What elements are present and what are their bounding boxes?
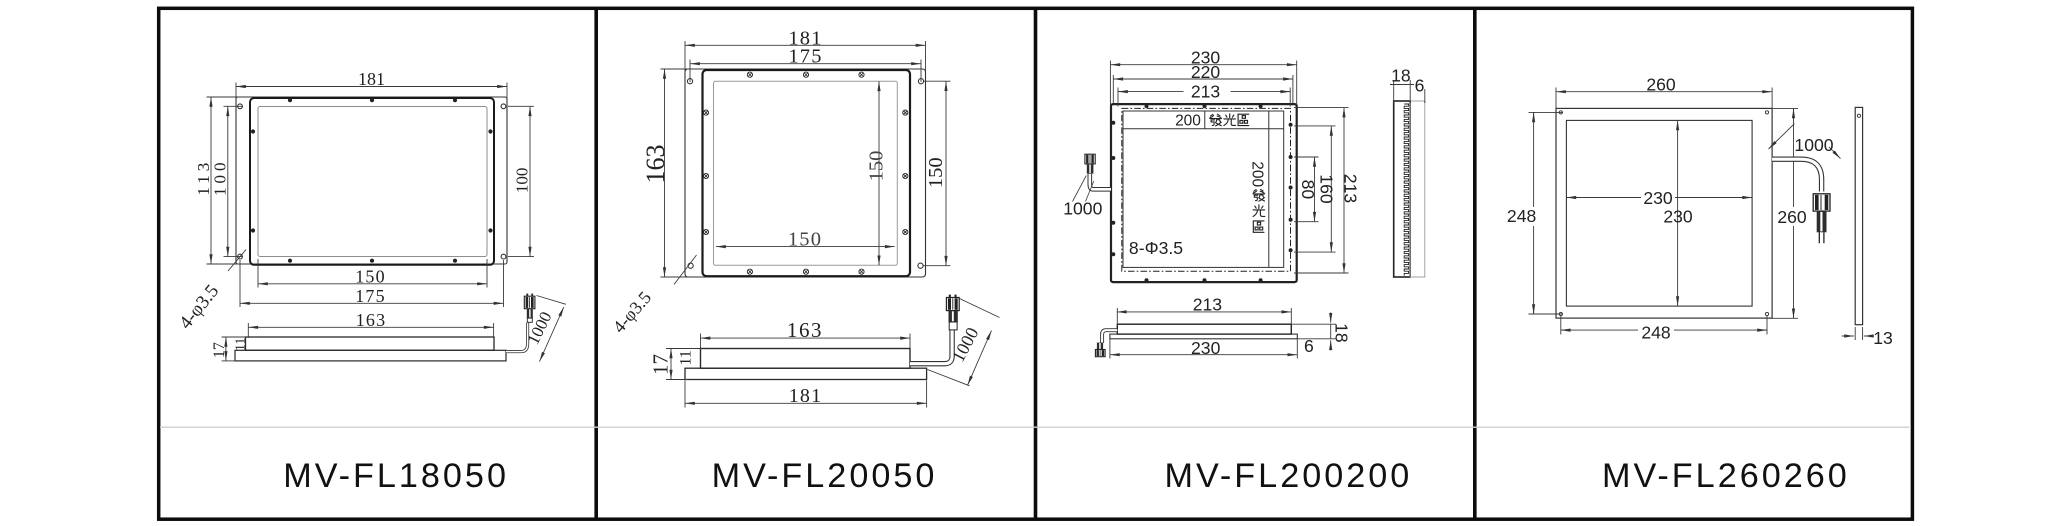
svg-text:200: 200: [1249, 161, 1266, 187]
svg-text:163: 163: [641, 145, 670, 184]
svg-text:17: 17: [649, 354, 673, 375]
svg-text:230: 230: [1643, 188, 1673, 208]
svg-text:181: 181: [789, 385, 823, 407]
svg-text:MV-FL20050: MV-FL20050: [712, 457, 938, 495]
svg-text:248: 248: [1507, 206, 1537, 226]
svg-text:1000: 1000: [1063, 199, 1102, 219]
svg-text:8-Φ3.5: 8-Φ3.5: [1129, 238, 1183, 258]
svg-text:163: 163: [356, 310, 387, 330]
svg-text:150: 150: [865, 151, 887, 182]
svg-text:200: 200: [1175, 112, 1201, 129]
svg-text:13: 13: [1873, 328, 1893, 348]
svg-text:150: 150: [925, 157, 947, 188]
svg-text:213: 213: [1193, 295, 1223, 315]
svg-text:MV-FL18050: MV-FL18050: [283, 457, 509, 495]
svg-text:11: 11: [233, 338, 248, 351]
svg-text:100: 100: [211, 158, 230, 196]
svg-text:213: 213: [1341, 174, 1361, 204]
svg-text:175: 175: [355, 286, 386, 306]
svg-text:260: 260: [1646, 75, 1676, 95]
svg-text:18: 18: [1391, 66, 1411, 86]
svg-text:100: 100: [513, 168, 532, 194]
svg-text:1000: 1000: [1794, 135, 1833, 155]
svg-text:17: 17: [211, 342, 228, 358]
svg-text:11: 11: [678, 350, 695, 365]
svg-text:18: 18: [1332, 323, 1352, 343]
svg-text:150: 150: [355, 266, 386, 286]
svg-text:6: 6: [1304, 336, 1314, 356]
svg-text:181: 181: [358, 69, 385, 89]
svg-text:80: 80: [1298, 180, 1318, 200]
svg-text:MV-FL260260: MV-FL260260: [1602, 457, 1850, 495]
svg-text:220: 220: [1191, 62, 1221, 82]
svg-text:230: 230: [1663, 206, 1693, 226]
svg-text:175: 175: [788, 45, 822, 67]
svg-text:260: 260: [1777, 207, 1807, 227]
svg-text:4-φ3.5: 4-φ3.5: [609, 287, 656, 336]
svg-text:160: 160: [1316, 174, 1336, 204]
svg-text:MV-FL200200: MV-FL200200: [1165, 457, 1413, 495]
svg-text:150: 150: [788, 228, 822, 250]
svg-text:248: 248: [1641, 322, 1671, 342]
svg-text:4-φ3.5: 4-φ3.5: [175, 281, 223, 333]
svg-text:163: 163: [787, 318, 823, 342]
svg-text:230: 230: [1191, 338, 1221, 358]
svg-text:213: 213: [1191, 81, 1221, 101]
svg-text:6: 6: [1415, 76, 1425, 96]
